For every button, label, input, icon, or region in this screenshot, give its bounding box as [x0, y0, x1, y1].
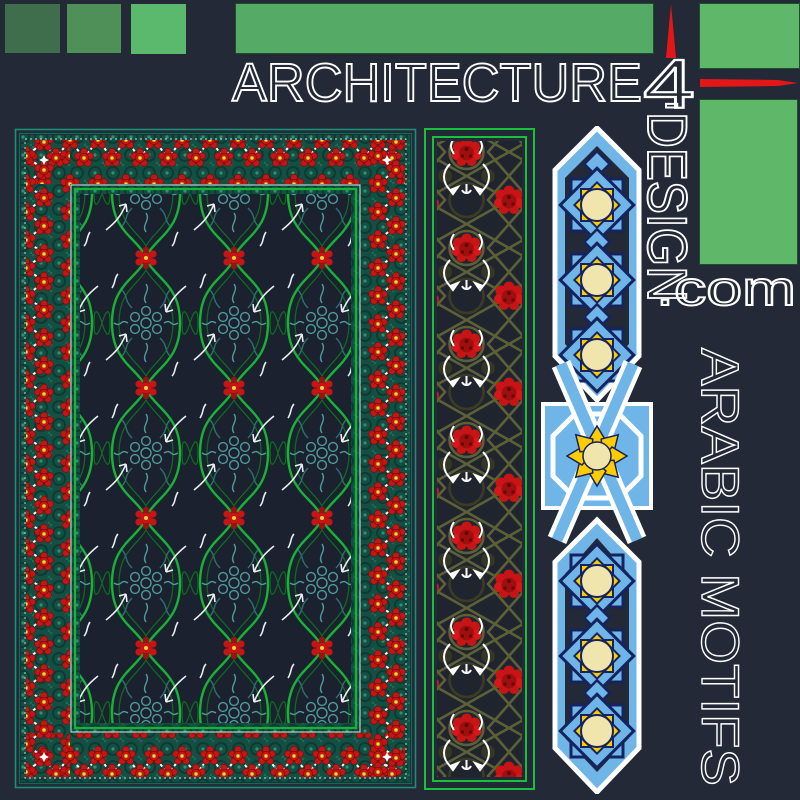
red-up-arrow-icon — [666, 4, 676, 58]
floral-strip-panel — [424, 128, 535, 790]
star-strip-panel — [541, 126, 653, 794]
brand-domain-suffix: .com — [656, 263, 796, 316]
brand-architecture-text: ARCHITECTURE — [232, 53, 642, 113]
carpet-panel — [14, 128, 417, 789]
poster: ARCHITECTURE 4 - DESIGN .com ARABIC MOTI… — [0, 0, 800, 800]
side-title-arabic-motifs: ARABIC MOTIFS — [690, 348, 749, 786]
side-title: ARABIC MOTIFS — [690, 330, 800, 800]
red-right-arrow-icon — [700, 79, 798, 87]
